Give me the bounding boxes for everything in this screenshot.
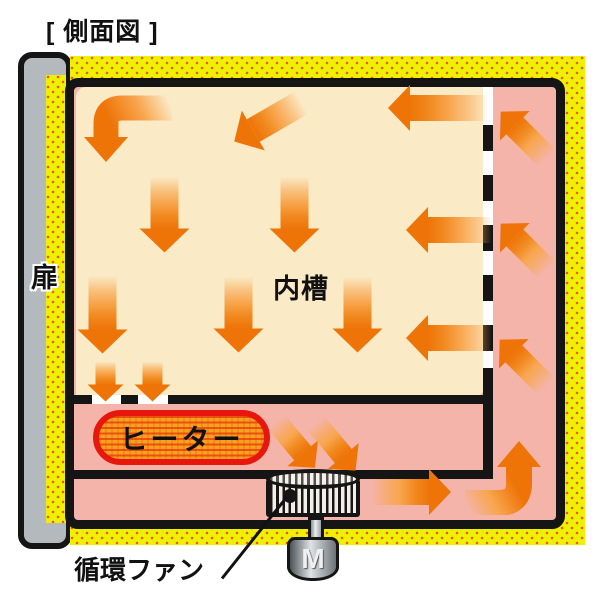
fan-label: 循環ファン	[74, 550, 204, 587]
airflow-arrow-down	[89, 361, 124, 401]
inner-chamber-label: 内槽	[273, 267, 329, 306]
insulation-strip-left	[46, 75, 66, 523]
diagram-title: [ 側面図 ]	[46, 12, 159, 48]
airflow-arrow-left	[406, 315, 492, 361]
airflow-arrow-down	[271, 176, 320, 252]
airflow-arrow-down	[334, 276, 383, 352]
airflow-elbow-arrow-top-left	[80, 94, 176, 166]
side-view-diagram: [ 側面図 ] ヒーター 内槽 扉	[0, 0, 600, 600]
heater: ヒーター	[93, 410, 270, 465]
fan-top	[266, 469, 360, 489]
airflow-arrow-down	[141, 176, 190, 252]
airflow-elbow-arrow-bottom-right	[463, 437, 549, 515]
motor-label: M	[301, 543, 324, 575]
motor: M	[287, 537, 339, 581]
heater-label: ヒーター	[119, 418, 243, 458]
airflow-arrow-right	[371, 469, 451, 515]
airflow-arrow-left	[406, 207, 492, 253]
airflow-arrow-down	[79, 275, 128, 353]
airflow-arrow-down	[136, 361, 171, 401]
chamber-floor-segment	[168, 395, 491, 404]
airflow-arrow-left	[388, 85, 488, 131]
door-label: 扉	[31, 256, 58, 295]
airflow-arrow-down	[215, 276, 264, 352]
